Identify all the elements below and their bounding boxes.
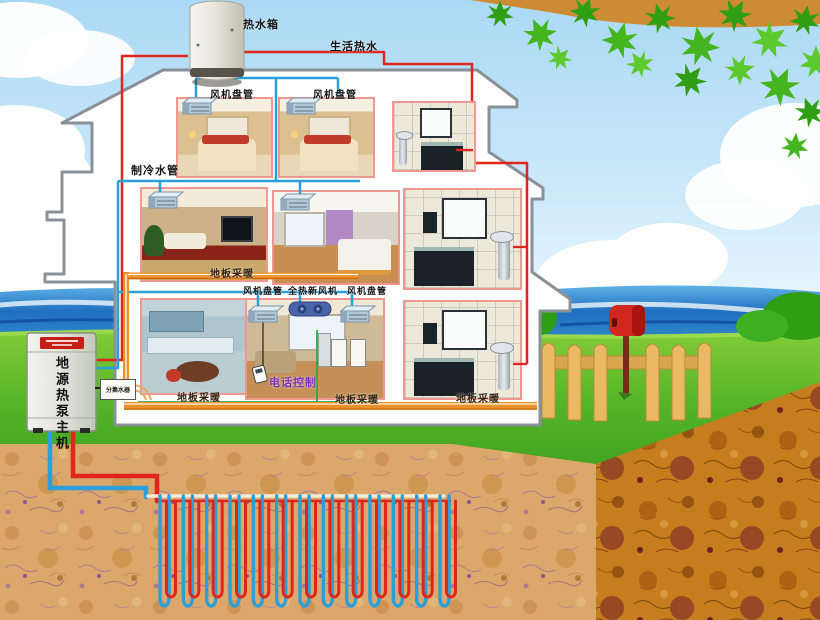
label-fan-coil-3: 风机盘管 <box>243 284 283 297</box>
label-fan-coil-1: 风机盘管 <box>210 86 254 101</box>
label-floor-heating-kitchen: 地板采暖 <box>177 389 221 404</box>
mirror <box>420 108 453 137</box>
label-floor-heating-mid: 地板采暖 <box>210 265 254 280</box>
label-cooling-water-pipe: 制冷水管 <box>131 162 179 178</box>
pillow <box>304 135 351 144</box>
label-hot-water-tank: 热水箱 <box>243 16 279 32</box>
pedestal-basin <box>498 348 510 390</box>
label-floor-heating-bath: 地板采暖 <box>456 390 500 405</box>
photo-bedroom-2 <box>278 97 375 178</box>
photo-bedroom-3 <box>272 190 400 285</box>
window <box>284 212 325 247</box>
photo-bedroom-1 <box>176 97 273 178</box>
cabinet <box>318 333 331 366</box>
pedestal-basin <box>498 237 510 280</box>
cabinets <box>149 311 204 332</box>
vanity <box>421 142 463 170</box>
label-fresh-air-unit: 全热新风机 <box>288 284 338 297</box>
shelf <box>423 323 437 344</box>
soil-front <box>0 444 596 620</box>
photo-bathroom-bottom <box>403 300 522 400</box>
pillow <box>202 135 249 144</box>
counter <box>147 337 234 354</box>
sofa <box>164 233 206 249</box>
basin <box>490 231 514 243</box>
mirror <box>442 310 487 350</box>
label-manifold: 分集水器 <box>106 385 130 394</box>
photo-bathroom-top <box>392 101 476 172</box>
basin <box>490 342 514 354</box>
heat-pump-badge <box>40 337 84 349</box>
label-domestic-hot-water: 生活热水 <box>330 38 378 54</box>
vanity <box>414 247 474 286</box>
hot-water-tank <box>190 1 244 87</box>
manifold-box: 分集水器 <box>100 379 136 400</box>
label-fan-coil-4: 风机盘管 <box>347 284 387 297</box>
bed <box>338 239 390 275</box>
photo-bathroom-mid <box>403 188 522 290</box>
plant <box>144 225 164 256</box>
label-heat-pump-main-unit: 地源热泵主机 <box>52 356 71 452</box>
table <box>176 361 220 381</box>
chair <box>166 369 181 382</box>
diagram-stage: 热水箱 生活热水 风机盘管 风机盘管 制冷水管 地板采暖 风机盘管 全热新风机 … <box>0 0 820 620</box>
radiator-panel <box>350 339 366 366</box>
label-phone-control: 电话控制 <box>269 374 317 390</box>
sofa <box>255 351 296 373</box>
label-floor-heating-living: 地板采暖 <box>335 391 379 406</box>
radiator-panel <box>331 339 347 366</box>
mirror <box>442 198 487 239</box>
basin <box>396 131 413 140</box>
shelf <box>423 212 437 234</box>
label-fan-coil-2: 风机盘管 <box>313 86 357 101</box>
lamp <box>189 131 196 138</box>
tv <box>221 216 252 242</box>
lamp <box>291 131 298 138</box>
